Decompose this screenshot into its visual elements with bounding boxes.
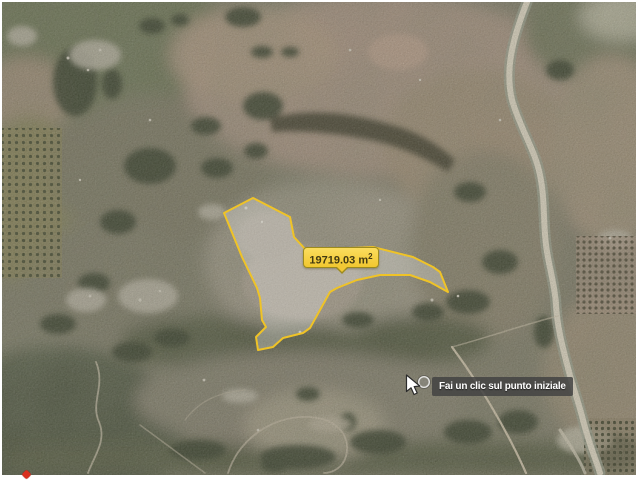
- label-pointer: [336, 266, 348, 272]
- satellite-imagery[interactable]: [2, 2, 636, 475]
- satellite-map[interactable]: [2, 2, 636, 475]
- draw-hint-tooltip: Fai un clic sul punto iniziale: [432, 377, 573, 396]
- area-unit-exponent: 2: [368, 252, 372, 261]
- area-value: 19719.03 m: [309, 255, 368, 267]
- area-measurement-label: 19719.03 m2: [303, 247, 379, 268]
- hint-text: Fai un clic sul punto iniziale: [439, 381, 566, 392]
- grain-light: [2, 2, 636, 475]
- mouse-cursor-icon: [405, 374, 423, 398]
- map-viewport[interactable]: 19719.03 m2 Fai un clic sul punto inizia…: [0, 0, 640, 480]
